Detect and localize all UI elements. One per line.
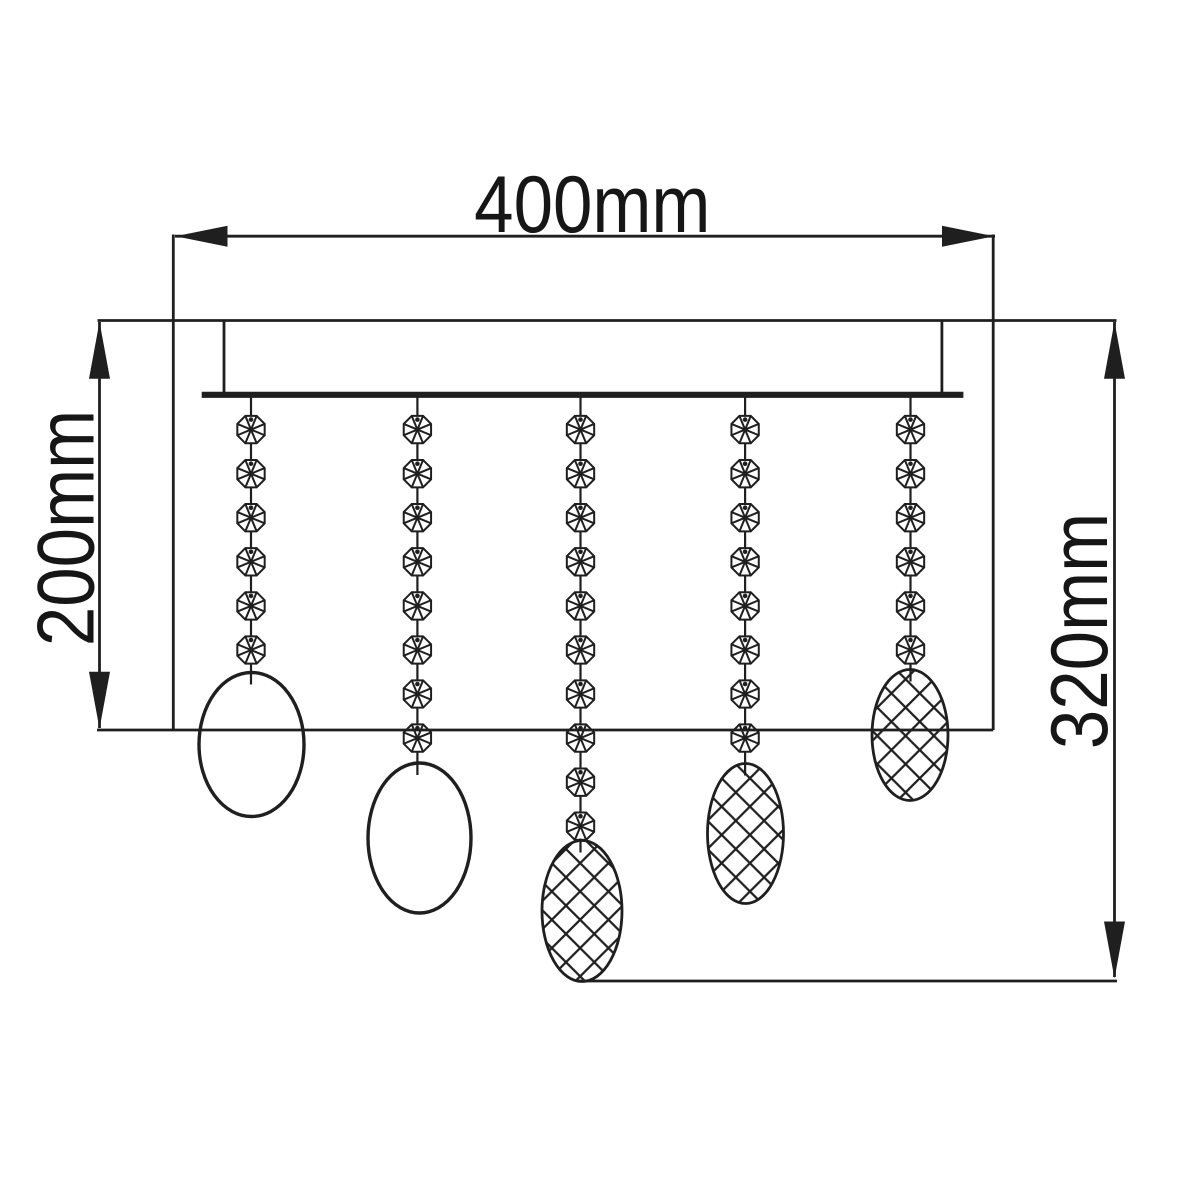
svg-text:200mm: 200mm bbox=[21, 410, 111, 646]
svg-text:320mm: 320mm bbox=[1035, 513, 1125, 749]
